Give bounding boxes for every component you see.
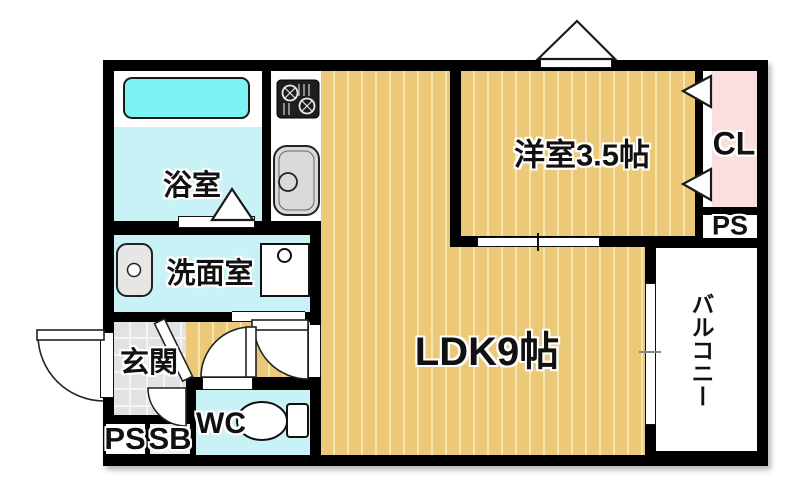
entrance-door-arc bbox=[38, 336, 103, 401]
label-closet: CL bbox=[713, 126, 756, 163]
ldk-door-opening bbox=[308, 325, 321, 377]
label-ldk: LDK9帖 bbox=[415, 319, 559, 377]
washing-machine-faucet bbox=[277, 248, 292, 263]
label-balcony: バルコニー bbox=[684, 293, 718, 408]
label-western-room: 洋室3.5帖 bbox=[514, 130, 650, 175]
floorplan: 浴室 洗面室 玄関 WC PS SB LDK9帖 洋室3.5帖 CL PS バル… bbox=[0, 0, 800, 480]
entrance-door-opening bbox=[100, 332, 114, 398]
bath-door-opening bbox=[178, 216, 255, 228]
label-wc: WC bbox=[196, 407, 246, 441]
ldk-western-sliding-door bbox=[477, 237, 600, 247]
label-entrance: 玄関 bbox=[120, 339, 178, 381]
label-pipe-space-lower: PS bbox=[104, 421, 145, 457]
kitchen-counter bbox=[271, 71, 321, 221]
label-bath: 浴室 bbox=[163, 162, 221, 204]
label-pipe-space-upper: PS bbox=[712, 211, 748, 242]
wc-door-opening bbox=[202, 377, 253, 390]
label-shoe-box: SB bbox=[148, 421, 191, 457]
balcony-sliding-window bbox=[645, 283, 656, 425]
closet-door-track bbox=[703, 71, 712, 207]
bathtub bbox=[123, 77, 250, 119]
western-room-window bbox=[540, 57, 612, 68]
entrance-door-leaf bbox=[37, 330, 104, 340]
washroom-door-opening bbox=[232, 311, 305, 322]
hallway bbox=[186, 322, 310, 377]
label-washroom: 洗面室 bbox=[166, 250, 253, 292]
window-triangle bbox=[538, 21, 615, 59]
